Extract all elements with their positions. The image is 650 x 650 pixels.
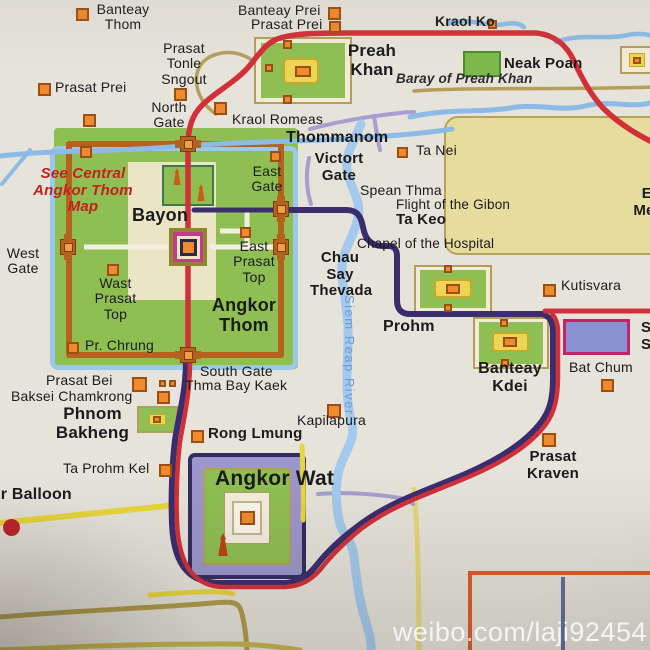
roads-and-rivers-layer xyxy=(0,0,650,650)
label-prasat-bei: Prasat Bei xyxy=(46,373,113,388)
poi-marker-thom-ne xyxy=(270,151,281,162)
label-east-prasat-top: East Prasat Top xyxy=(226,239,282,285)
label-kraol-ko: Kraol Ko xyxy=(435,14,495,29)
label-see-central-note: See Central Angkor Thom Map xyxy=(30,166,136,216)
poi-marker-banteay-prei xyxy=(328,7,341,20)
poi-marker-kraol-romeas xyxy=(214,102,227,115)
poi-marker-prasat-kraven xyxy=(542,433,556,447)
label-baray-of-preah-khan: Baray of Preah Khan xyxy=(396,72,533,87)
poi-marker-preah-khan-n xyxy=(283,40,292,49)
label-bat-chum: Bat Chum xyxy=(569,360,633,375)
poi-marker-ta-prohm-n xyxy=(444,265,452,273)
poi-marker-kutisvara xyxy=(543,284,556,297)
label-kraol-romeas: Kraol Romeas xyxy=(232,112,323,127)
poi-marker-bat-chum xyxy=(601,379,614,392)
poi-marker-unnamed-nw xyxy=(83,114,96,127)
label-baksei-chamkrong: Baksei Chamkrong xyxy=(11,389,132,404)
label-srah-srang: Srah Srang xyxy=(641,320,650,353)
poi-marker-preah-khan-w xyxy=(265,64,273,72)
balloon-location-dot xyxy=(3,519,20,536)
poi-marker-pr-chrung xyxy=(67,342,79,354)
label-rong-lmung: Rong Lmung xyxy=(208,426,302,443)
poi-marker-prasat-bei xyxy=(132,377,147,392)
label-chapel-of-the-hospital: Chapel of the Hospital xyxy=(357,237,494,252)
weibo-watermark: weibo.com/laji92454 xyxy=(393,617,647,648)
label-west-gate: West Gate xyxy=(2,246,44,277)
label-victory-gate: Victort Gate xyxy=(305,151,373,184)
label-thommanom: Thommanom xyxy=(286,129,388,147)
angkor-paper-map-photo: Banteay Thom Prasat Prei Prasat Tonle Sn… xyxy=(0,0,650,650)
red-road-loop xyxy=(177,314,558,587)
label-prasat-kraven: Prasat Kraven xyxy=(522,449,584,482)
label-north-gate: North Gate xyxy=(146,100,192,131)
label-wast-prasat-top: Wast Prasat Top xyxy=(88,276,143,322)
label-ta-keo: Ta Keo xyxy=(396,212,446,229)
label-prasat-prei-nw: Prasat Prei xyxy=(55,80,126,95)
label-ta-prohm-kel: Ta Prohm Kel xyxy=(63,461,149,476)
poi-marker-rong-lmung xyxy=(191,430,204,443)
label-prasat-tonle-sngout: Prasat Tonle Sngout xyxy=(155,41,213,87)
bayon-icon xyxy=(169,228,207,266)
poi-marker-preah-khan-s xyxy=(283,95,292,104)
label-siem-reap-river: Siem Reap River xyxy=(342,295,357,416)
label-phnom-bakheng: Phnom Bakheng xyxy=(45,405,140,442)
north-gate-icon xyxy=(180,136,196,152)
label-chau-say-thevada: Chau Say Thevada xyxy=(310,250,370,300)
west-gate-icon xyxy=(60,239,76,255)
poi-marker-ta-prohm-kel xyxy=(159,464,172,477)
poi-marker-prasat-prei-nw xyxy=(38,83,51,96)
poi-marker-thom-nw xyxy=(80,146,92,158)
label-banteay-kdei: Banteay Kdei xyxy=(470,360,550,395)
victory-gate-icon xyxy=(273,201,289,217)
poi-marker-banteay-kdei-n xyxy=(500,319,508,327)
poi-marker-baksei-chamkrong xyxy=(157,391,170,404)
label-ta-nei: Ta Nei xyxy=(416,143,457,158)
poi-marker-east-prasat-top xyxy=(240,227,251,238)
label-bayon: Bayon xyxy=(132,206,188,226)
label-banteay-thom: Banteay Thom xyxy=(78,2,168,33)
label-prasat-prei-n: Prasat Prei xyxy=(251,17,322,32)
poi-marker-ta-nei xyxy=(397,147,408,158)
label-angkor-balloon: Angkor Balloon xyxy=(0,486,72,504)
label-kutisvara: Kutisvara xyxy=(561,278,621,293)
poi-marker-prasat-bei-small-2 xyxy=(169,380,176,387)
label-east-gate: East Gate xyxy=(245,164,289,195)
label-east-mebon: East Mebon xyxy=(620,186,650,219)
label-thma-bay-kaek: Thma Bay Kaek xyxy=(185,378,287,393)
label-angkor-thom: Angkor Thom xyxy=(203,296,285,336)
label-angkor-wat: Angkor Wat xyxy=(215,467,334,490)
poi-marker-prasat-bei-small-1 xyxy=(159,380,166,387)
poi-marker-ta-prohm-s xyxy=(444,304,452,312)
label-pr-chrung: Pr. Chrung xyxy=(85,338,154,353)
south-gate-icon xyxy=(180,347,196,363)
label-prohm: Prohm xyxy=(383,318,435,336)
poi-marker-prasat-prei-n xyxy=(329,21,341,33)
